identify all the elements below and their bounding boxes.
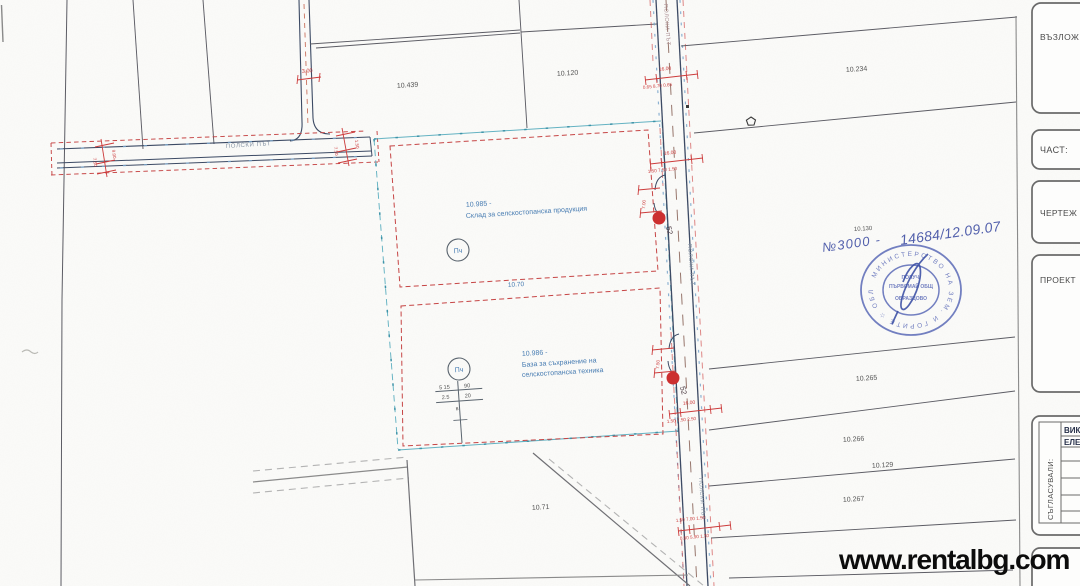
svg-text:10.129: 10.129 (872, 462, 894, 470)
svg-text:2.5: 2.5 (442, 395, 450, 402)
svg-text:ЧЕРТЕЖ: ЧЕРТЕЖ (1040, 208, 1077, 218)
svg-text:10.267: 10.267 (843, 496, 865, 504)
svg-text:www.rentalbg.com: www.rentalbg.com (838, 544, 1069, 575)
svg-text:3.00: 3.00 (302, 68, 313, 75)
svg-text:10.70: 10.70 (508, 281, 525, 289)
svg-text:20: 20 (465, 393, 472, 399)
svg-text:10.266: 10.266 (843, 436, 865, 444)
svg-text:10.439: 10.439 (397, 82, 419, 90)
svg-text:в: в (455, 406, 458, 412)
svg-text:10.120: 10.120 (557, 70, 579, 78)
svg-text:10.130: 10.130 (854, 226, 873, 233)
svg-text:ВИК: ВИК (1064, 426, 1080, 435)
svg-text:СЪГЛАСУВАЛИ:: СЪГЛАСУВАЛИ: (1046, 458, 1055, 520)
svg-text:ПЪРВОМАЙ ОБЩ: ПЪРВОМАЙ ОБЩ (889, 282, 934, 290)
svg-text:ВЪЗЛОЖ: ВЪЗЛОЖ (1040, 32, 1079, 42)
svg-text:10.265: 10.265 (856, 375, 878, 383)
svg-text:10.71: 10.71 (532, 504, 550, 512)
svg-text:ЧАСТ:: ЧАСТ: (1040, 145, 1068, 155)
svg-text:10.234: 10.234 (846, 66, 868, 74)
svg-text:Пч: Пч (454, 248, 463, 256)
svg-text:Пч: Пч (455, 367, 464, 375)
svg-text:5 15: 5 15 (439, 385, 450, 392)
svg-text:ПРОЕКТ: ПРОЕКТ (1040, 275, 1076, 285)
svg-text:90: 90 (464, 383, 471, 389)
svg-text:7.50: 7.50 (655, 359, 661, 369)
svg-text:7.00: 7.00 (641, 199, 647, 209)
svg-text:ЕЛЕ: ЕЛЕ (1064, 438, 1080, 447)
